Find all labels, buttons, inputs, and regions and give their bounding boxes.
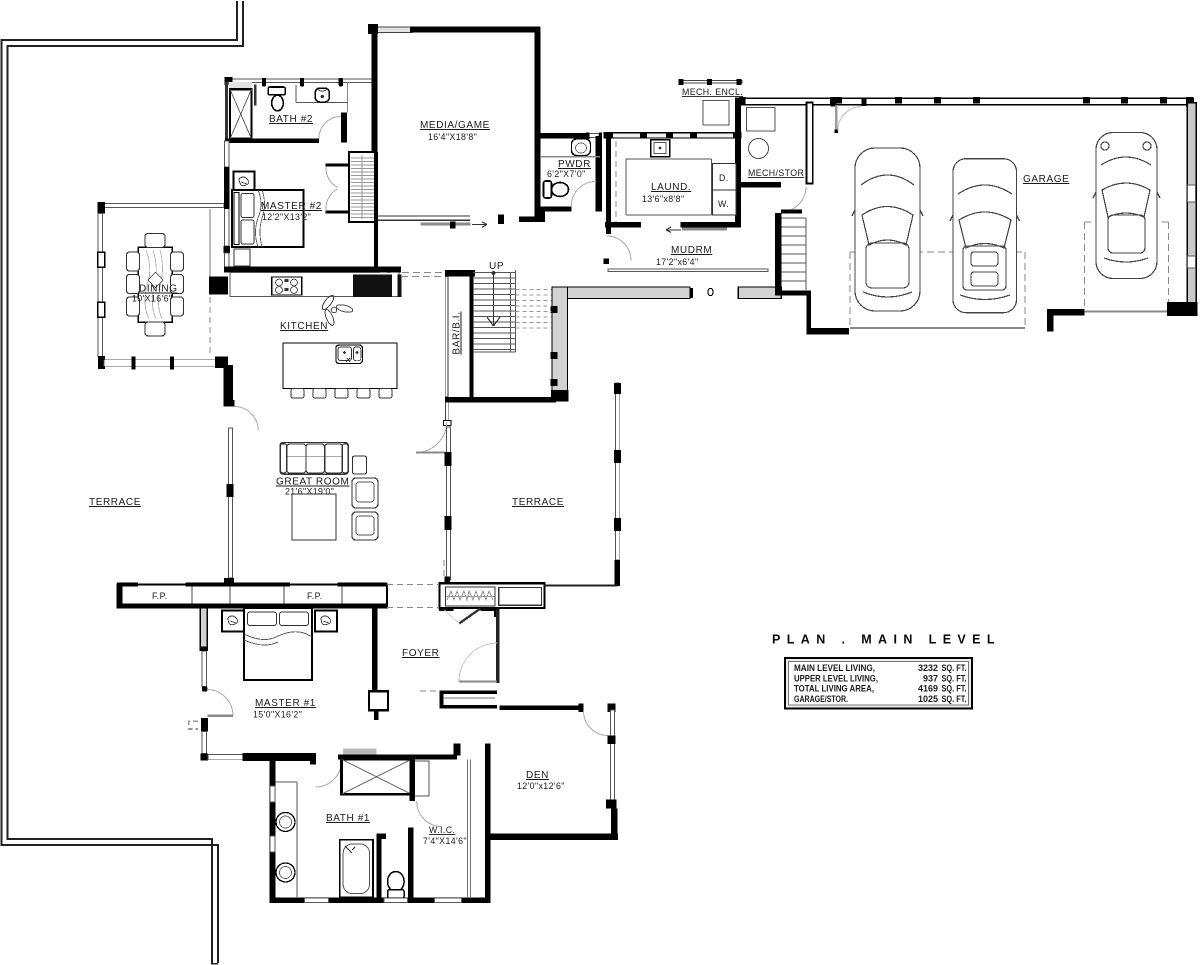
svg-text:W.: W. (718, 199, 729, 209)
svg-text:10'X16'6": 10'X16'6" (132, 294, 172, 304)
svg-text:GARAGE: GARAGE (1023, 174, 1069, 185)
svg-text:16'4"X18'8": 16'4"X18'8" (428, 132, 477, 142)
svg-text:UPPER LEVEL LIVING,: UPPER LEVEL LIVING, (794, 673, 878, 683)
svg-text:BATH #1: BATH #1 (326, 813, 370, 824)
svg-text:SQ. FT.: SQ. FT. (942, 694, 967, 704)
svg-text:1025: 1025 (918, 694, 938, 704)
svg-text:6'2"X7'0": 6'2"X7'0" (547, 169, 586, 179)
svg-text:15'0"X16'2": 15'0"X16'2" (253, 710, 302, 720)
svg-text:12'2"X13'2": 12'2"X13'2" (262, 212, 311, 222)
svg-text:TOTAL LIVING AREA,: TOTAL LIVING AREA, (794, 684, 874, 694)
svg-text:MASTER #1: MASTER #1 (255, 698, 316, 709)
svg-text:GARAGE/STOR.: GARAGE/STOR. (794, 694, 848, 704)
svg-text:MASTER #2: MASTER #2 (261, 201, 322, 212)
svg-text:7'4"X14'6": 7'4"X14'6" (423, 836, 467, 846)
svg-text:TERRACE: TERRACE (512, 497, 564, 508)
svg-text:17'2"x6'4": 17'2"x6'4" (656, 257, 698, 267)
svg-text:F.P.: F.P. (152, 591, 168, 601)
svg-text:MECH. ENCL.: MECH. ENCL. (682, 87, 743, 97)
svg-text:W.I.C.: W.I.C. (429, 825, 455, 835)
svg-text:FOYER: FOYER (402, 648, 439, 659)
svg-text:TERRACE: TERRACE (89, 497, 141, 508)
svg-text:3232: 3232 (918, 663, 938, 673)
svg-text:4169: 4169 (918, 684, 938, 694)
svg-text:BAR/B.I.: BAR/B.I. (452, 311, 463, 354)
svg-text:BATH #2: BATH #2 (269, 114, 313, 125)
svg-text:PLAN . MAIN LEVEL: PLAN . MAIN LEVEL (772, 633, 1001, 647)
svg-text:13'6"x8'8": 13'6"x8'8" (642, 194, 684, 204)
svg-text:937: 937 (923, 673, 938, 683)
svg-text:F.P.: F.P. (307, 591, 323, 601)
svg-text:LAUND.: LAUND. (651, 182, 691, 193)
svg-text:MEDIA/GAME: MEDIA/GAME (420, 120, 490, 131)
svg-text:MUDRM: MUDRM (671, 245, 712, 256)
svg-text:SQ. FT.: SQ. FT. (942, 684, 967, 694)
svg-text:MECH/STOR: MECH/STOR (748, 168, 804, 178)
svg-text:SQ. FT.: SQ. FT. (942, 673, 967, 683)
svg-text:D.: D. (719, 173, 729, 183)
svg-text:12'0"x12'6": 12'0"x12'6" (517, 781, 565, 791)
svg-text:KITCHEN: KITCHEN (280, 321, 328, 332)
svg-text:21'6"X19'0": 21'6"X19'0" (285, 487, 334, 497)
svg-text:UP: UP (489, 261, 504, 272)
svg-text:SQ. FT.: SQ. FT. (942, 663, 967, 673)
svg-text:DEN: DEN (526, 770, 549, 781)
svg-text:MAIN LEVEL LIVING,: MAIN LEVEL LIVING, (794, 663, 875, 673)
